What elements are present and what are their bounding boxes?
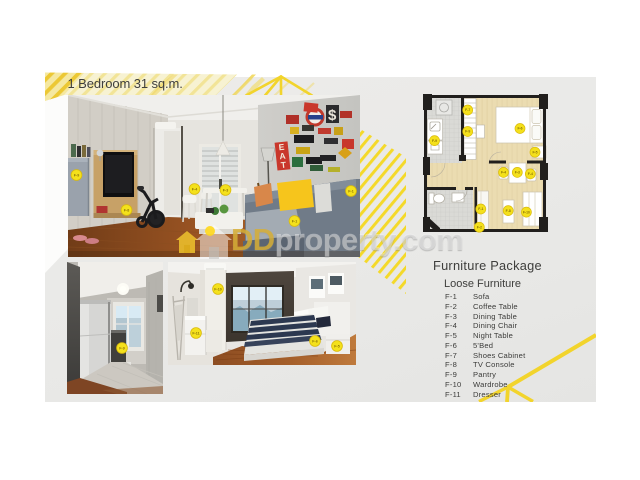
svg-text:F-9: F-9 [73,173,78,177]
svg-text:F-8: F-8 [123,208,128,212]
svg-text:F-9: F-9 [119,346,124,350]
svg-text:F-1: F-1 [478,207,483,211]
svg-text:F-6: F-6 [517,127,522,131]
svg-text:F-7: F-7 [465,108,470,112]
svg-text:F-1: F-1 [348,189,353,193]
svg-text:F-5: F-5 [334,344,339,348]
svg-text:F-10: F-10 [214,287,221,291]
svg-text:$: $ [328,107,337,124]
svg-text:F-3: F-3 [222,188,227,192]
svg-text:F-5: F-5 [532,150,537,154]
svg-text:F-3: F-3 [515,171,520,175]
svg-text:F-4: F-4 [528,172,533,176]
svg-text:F-11: F-11 [192,331,199,335]
svg-text:F-8: F-8 [506,209,511,213]
svg-text:F-6: F-6 [312,339,317,343]
svg-text:F-9: F-9 [432,139,437,143]
svg-text:F-9: F-9 [465,130,470,134]
svg-text:F-4: F-4 [191,187,196,191]
svg-text:F-4: F-4 [501,171,506,175]
svg-text:F-10: F-10 [523,210,530,214]
svg-text:F-2: F-2 [477,225,482,229]
